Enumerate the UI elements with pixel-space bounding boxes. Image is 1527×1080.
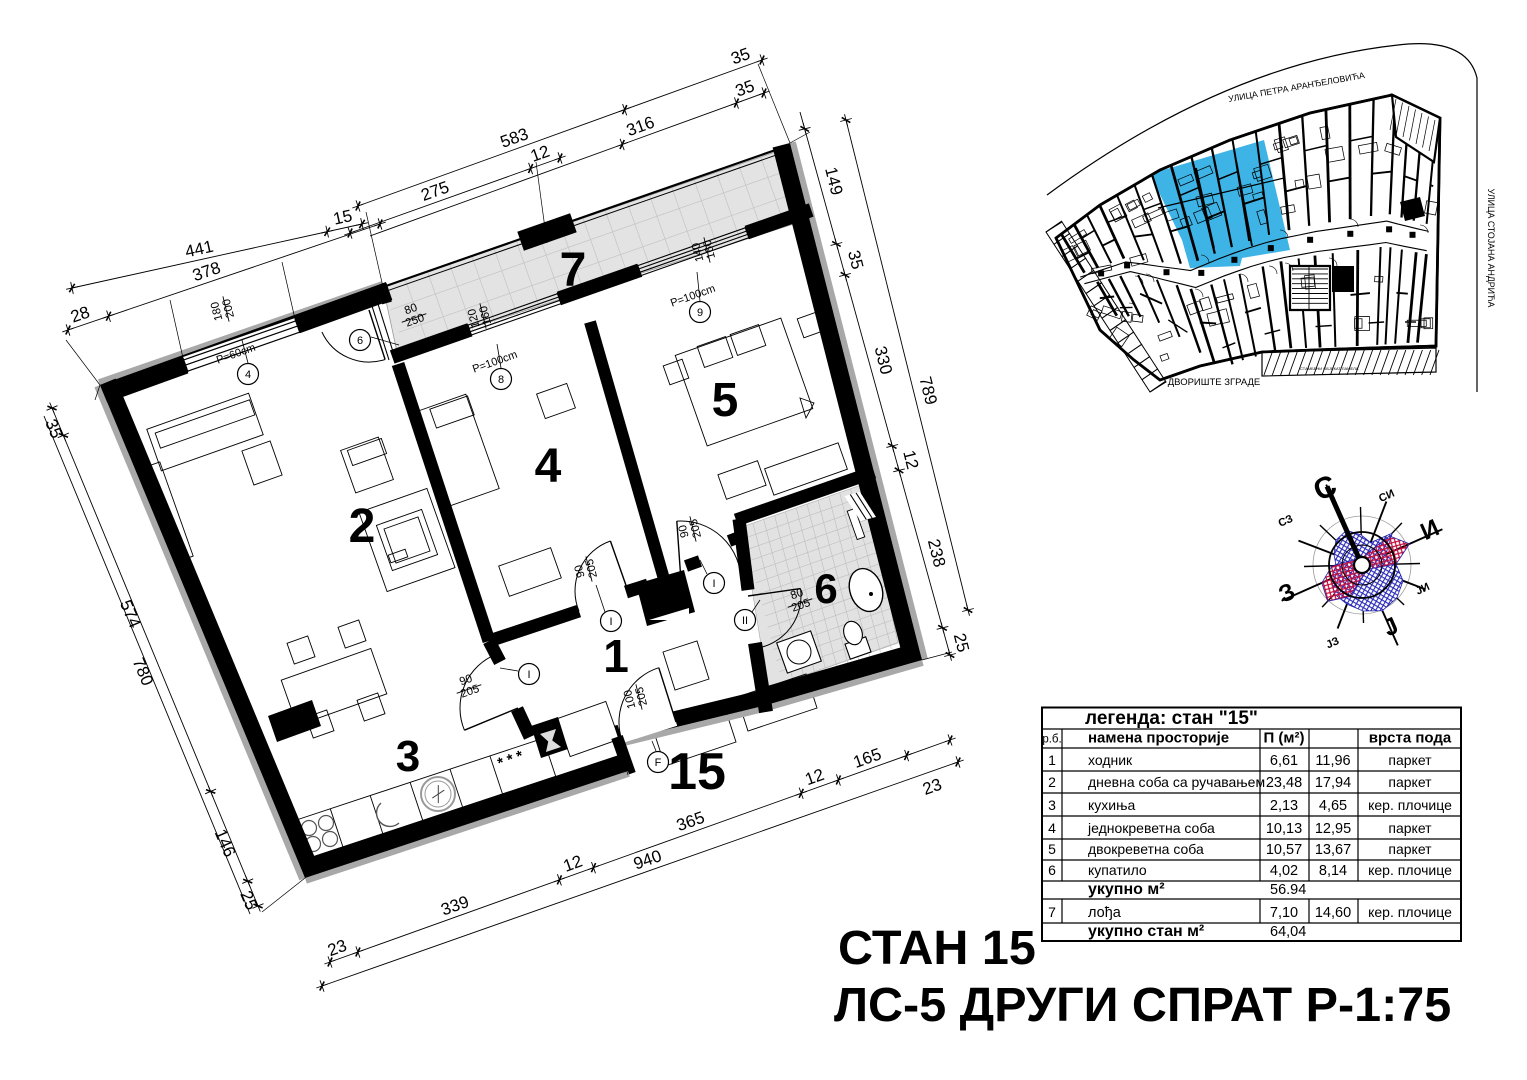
svg-text:35: 35 — [844, 248, 867, 271]
svg-text:ЛС-5 ДРУГИ СПРАТ Р-1:75: ЛС-5 ДРУГИ СПРАТ Р-1:75 — [834, 978, 1451, 1032]
svg-text:ДВОРИШТЕ ЗГРАДЕ: ДВОРИШТЕ ЗГРАДЕ — [1168, 377, 1261, 388]
svg-text:1: 1 — [1048, 752, 1056, 768]
svg-text:3: 3 — [396, 732, 420, 781]
svg-text:7: 7 — [560, 244, 587, 297]
svg-text:12,95: 12,95 — [1315, 821, 1351, 837]
svg-text:једнокреветна соба: једнокреветна соба — [1087, 820, 1215, 836]
svg-text:укупно м²: укупно м² — [1088, 881, 1165, 898]
svg-text:4: 4 — [535, 440, 562, 493]
svg-text:4: 4 — [245, 369, 251, 381]
svg-text:кухиња: кухиња — [1088, 797, 1135, 813]
svg-text:165: 165 — [851, 744, 884, 771]
svg-text:врста пода: врста пода — [1369, 730, 1452, 747]
svg-text:10,13: 10,13 — [1266, 821, 1302, 837]
svg-text:I: I — [609, 616, 612, 628]
svg-text:кер. плочице: кер. плочице — [1368, 797, 1452, 813]
svg-text:789: 789 — [915, 375, 940, 407]
svg-text:17,94: 17,94 — [1315, 775, 1351, 791]
svg-text:3: 3 — [1048, 797, 1056, 813]
svg-text:4,65: 4,65 — [1319, 798, 1347, 814]
svg-text:1: 1 — [603, 630, 629, 682]
svg-text:35: 35 — [41, 416, 66, 441]
svg-text:паркет: паркет — [1388, 820, 1432, 836]
svg-text:940: 940 — [631, 846, 664, 873]
svg-text:6,61: 6,61 — [1270, 753, 1298, 769]
svg-text:378: 378 — [190, 258, 223, 285]
svg-text:СТАН 15: СТАН 15 — [838, 921, 1036, 975]
svg-text:11,96: 11,96 — [1315, 753, 1350, 769]
svg-text:СТАМБЕНИ ОБЈЕКАТ ЛАМЕЛА: СТАМБЕНИ ОБЈЕКАТ ЛАМЕЛА — [1300, 366, 1359, 371]
svg-text:238: 238 — [924, 537, 949, 569]
svg-text:П (м²): П (м²) — [1263, 730, 1304, 747]
svg-text:З: З — [1275, 578, 1300, 609]
svg-text:6: 6 — [1048, 862, 1056, 878]
svg-text:23,48: 23,48 — [1266, 775, 1302, 791]
svg-text:ЈИ: ЈИ — [1414, 581, 1432, 598]
svg-text:64,04: 64,04 — [1270, 924, 1306, 940]
svg-text:СЗ: СЗ — [1277, 513, 1295, 530]
svg-text:330: 330 — [871, 344, 896, 376]
svg-text:купатило: купатило — [1088, 862, 1147, 878]
svg-text:4: 4 — [1048, 820, 1056, 836]
svg-text:10,57: 10,57 — [1266, 842, 1302, 858]
svg-text:УЛИЦА СТОЈАНА АНДРИЋА: УЛИЦА СТОЈАНА АНДРИЋА — [1486, 189, 1496, 308]
svg-text:ЈЗ: ЈЗ — [1324, 635, 1341, 651]
svg-text:583: 583 — [498, 124, 531, 152]
svg-text:F: F — [655, 757, 662, 769]
svg-text:25: 25 — [236, 888, 261, 913]
svg-text:4,02: 4,02 — [1270, 863, 1298, 879]
svg-text:р.б.: р.б. — [1042, 734, 1061, 746]
svg-text:2,13: 2,13 — [1270, 798, 1298, 814]
svg-text:5: 5 — [712, 374, 739, 427]
svg-text:укупно стан м²: укупно стан м² — [1088, 923, 1204, 940]
svg-text:кер. плочице: кер. плочице — [1368, 862, 1452, 878]
svg-text:7: 7 — [1048, 904, 1056, 920]
svg-text:9: 9 — [697, 307, 703, 319]
svg-text:5: 5 — [1048, 841, 1056, 857]
svg-text:дневна соба са ручавањем: дневна соба са ручавањем — [1088, 774, 1265, 790]
svg-text:паркет: паркет — [1388, 752, 1432, 768]
svg-text:I: I — [527, 669, 530, 681]
svg-text:13,67: 13,67 — [1315, 842, 1351, 858]
svg-text:УЛИЦА ПЕТРА АРАНЂЕЛОВИЋА: УЛИЦА ПЕТРА АРАНЂЕЛОВИЋА — [1227, 70, 1365, 104]
svg-text:12: 12 — [899, 448, 922, 471]
svg-text:ходник: ходник — [1088, 752, 1133, 768]
svg-text:кер. плочице: кер. плочице — [1368, 904, 1452, 920]
svg-text:двокреветна соба: двокреветна соба — [1088, 841, 1204, 857]
svg-text:56.94: 56.94 — [1270, 882, 1306, 898]
svg-text:II: II — [742, 615, 748, 627]
svg-text:паркет: паркет — [1388, 774, 1432, 790]
svg-text:Ј: Ј — [1379, 612, 1402, 642]
svg-text:8,14: 8,14 — [1319, 863, 1347, 879]
svg-text:780: 780 — [129, 655, 158, 689]
svg-text:316: 316 — [624, 113, 657, 141]
svg-text:2: 2 — [349, 500, 376, 553]
svg-text:СИ: СИ — [1377, 488, 1396, 505]
svg-text:15: 15 — [668, 743, 726, 801]
svg-text:339: 339 — [438, 892, 471, 919]
svg-text:275: 275 — [419, 177, 452, 204]
svg-text:8: 8 — [498, 374, 504, 386]
svg-text:25: 25 — [950, 631, 973, 654]
svg-text:23: 23 — [920, 775, 944, 799]
svg-text:365: 365 — [674, 808, 707, 835]
svg-text:паркет: паркет — [1388, 841, 1432, 857]
svg-text:15: 15 — [331, 206, 354, 229]
svg-text:И: И — [1417, 514, 1444, 546]
svg-text:I: I — [712, 578, 715, 590]
svg-text:149: 149 — [821, 165, 846, 197]
svg-text:С: С — [1309, 469, 1342, 508]
svg-text:лођа: лођа — [1088, 905, 1122, 921]
svg-text:7,10: 7,10 — [1270, 905, 1298, 921]
svg-text:намена просторије: намена просторије — [1088, 730, 1229, 747]
svg-text:14,60: 14,60 — [1315, 905, 1351, 921]
svg-text:2: 2 — [1048, 774, 1056, 790]
svg-text:легенда: стан "15": легенда: стан "15" — [1085, 708, 1258, 729]
svg-text:6: 6 — [357, 335, 363, 347]
svg-text:6: 6 — [814, 565, 837, 612]
